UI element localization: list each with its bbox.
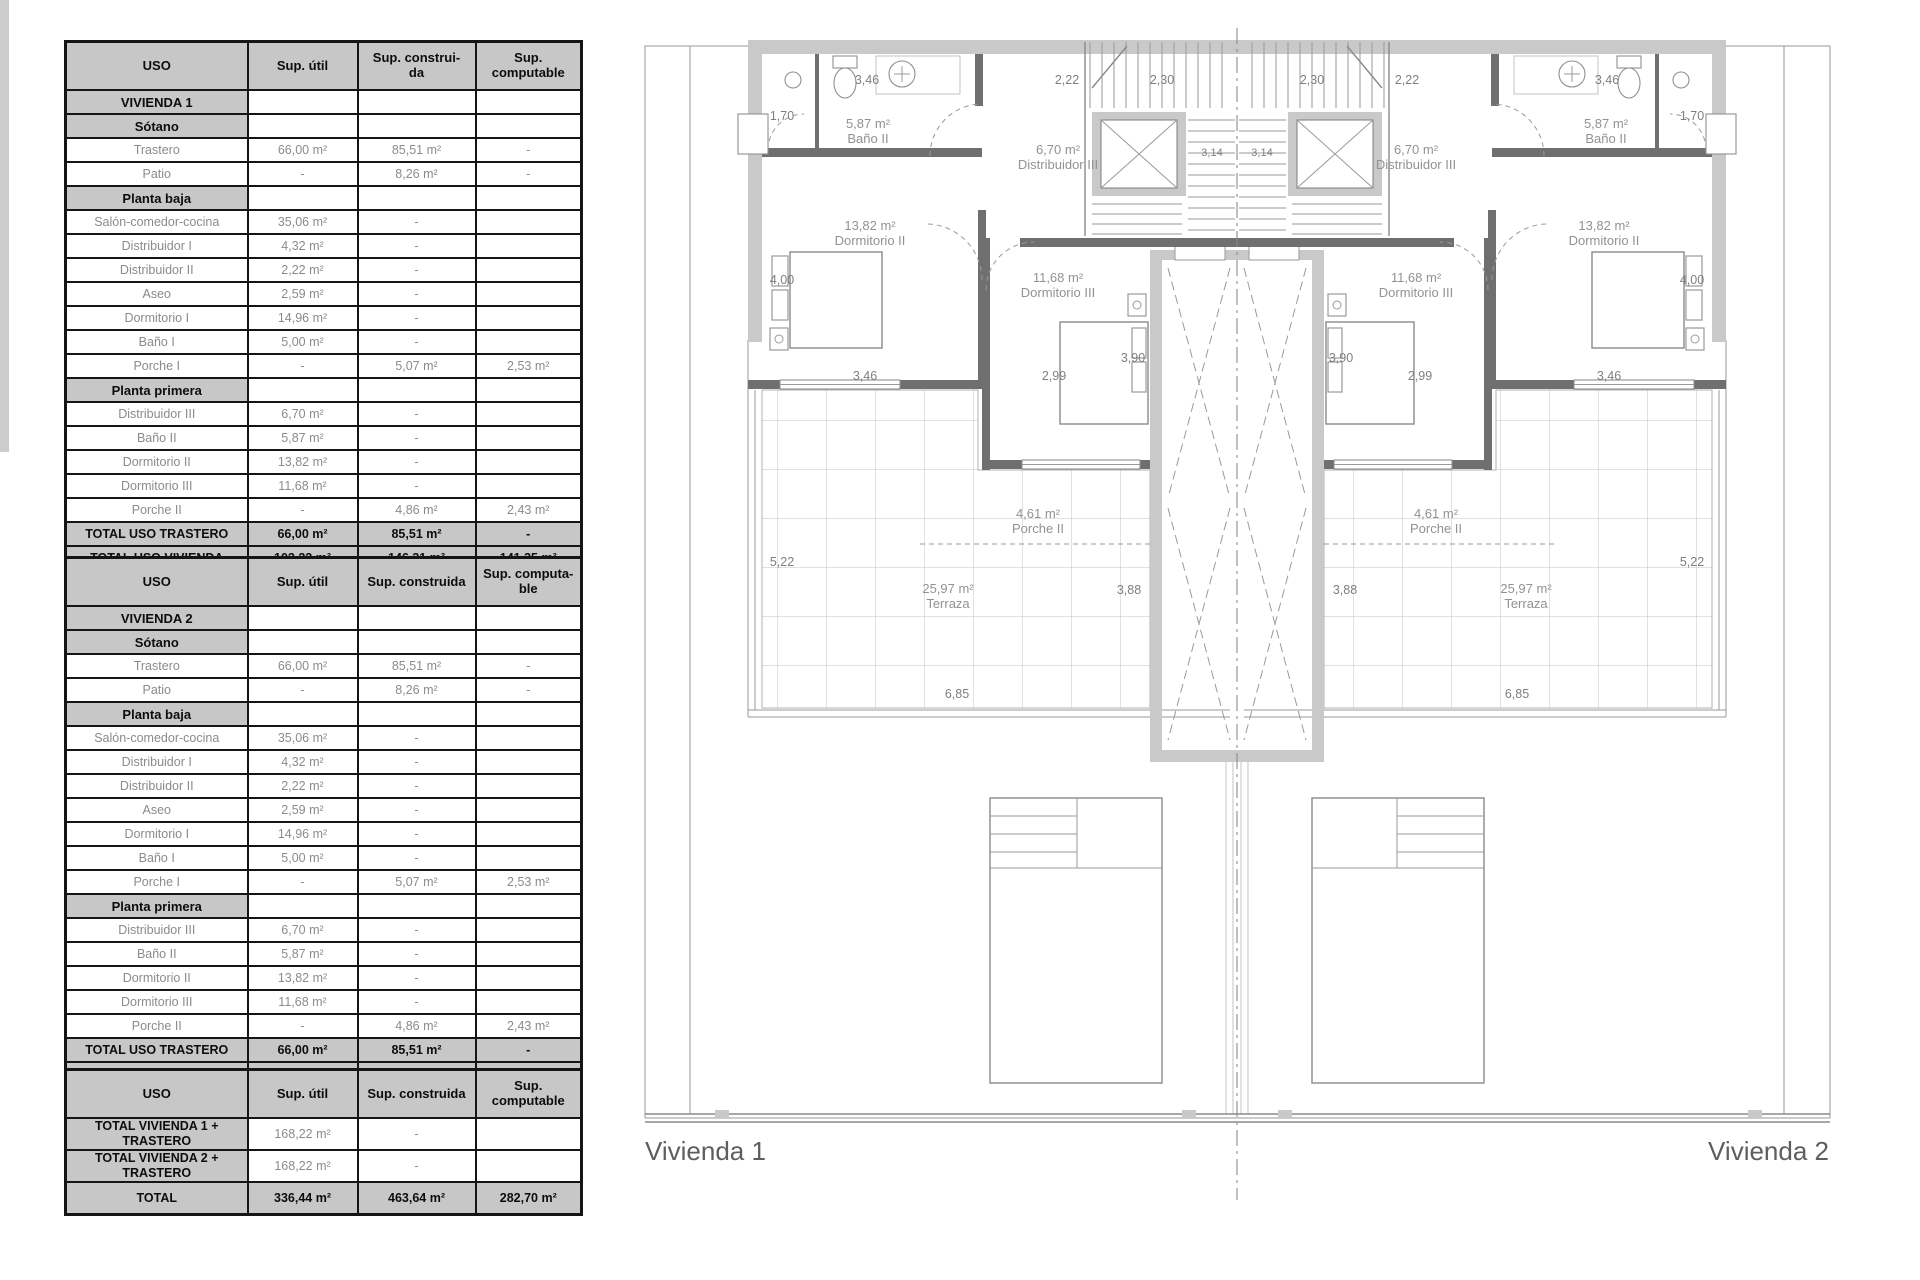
sheet-edge-strip — [0, 0, 9, 452]
table-cell-label: Dormitorio I — [66, 822, 248, 846]
table-cell-construida: 463,64 m² — [358, 1182, 476, 1215]
table-cell-construida: - — [358, 306, 476, 330]
table-cell-label: Planta baja — [66, 186, 248, 210]
dimension-label: 3,90 — [1121, 351, 1145, 365]
room-label: Baño II — [1585, 131, 1626, 146]
table-cell-util: 66,00 m² — [248, 1038, 358, 1062]
dimension-label: 1,70 — [770, 109, 794, 123]
room-label: 5,87 m² — [846, 116, 891, 131]
table-cell-label: TOTAL USO TRASTERO — [66, 1038, 248, 1062]
table-cell-computable — [476, 846, 582, 870]
table-cell-util: 66,00 m² — [248, 654, 358, 678]
dimension-label: 3,46 — [1595, 73, 1619, 87]
table-cell-label: Baño I — [66, 846, 248, 870]
dimension-label: 3,88 — [1333, 583, 1357, 597]
table-cell-construida: - — [358, 282, 476, 306]
table-row: Trastero66,00 m²85,51 m²- — [66, 138, 582, 162]
table-cell-label: Planta primera — [66, 378, 248, 402]
table-cell-util: 6,70 m² — [248, 918, 358, 942]
room-label: 11,68 m² — [1033, 270, 1084, 285]
table-cell-util — [248, 186, 358, 210]
table-row: Baño II5,87 m²- — [66, 942, 582, 966]
room-label: 25,97 m² — [922, 581, 974, 596]
total-row: TOTAL USO TRASTERO66,00 m²85,51 m²- — [66, 522, 582, 546]
table-cell-util: 336,44 m² — [248, 1182, 358, 1215]
table-row: Dormitorio III11,68 m²- — [66, 474, 582, 498]
table-cell-util — [248, 114, 358, 138]
room-label: Porche II — [1410, 521, 1462, 536]
section-row: VIVIENDA 1 — [66, 90, 582, 114]
table-row: Patio-8,26 m²- — [66, 678, 582, 702]
dimension-label: 6,85 — [945, 687, 969, 701]
table-cell-label: Sótano — [66, 630, 248, 654]
table-cell-construida: - — [358, 918, 476, 942]
table-cell-computable — [476, 1150, 582, 1182]
table-cell-computable — [476, 114, 582, 138]
table-cell-construida: 85,51 m² — [358, 1038, 476, 1062]
room-label: Dormitorio II — [1569, 233, 1640, 248]
table-cell-label: TOTAL VIVIENDA 1 + TRASTERO — [66, 1118, 248, 1150]
table-cell-computable — [476, 474, 582, 498]
table-cell-util: 13,82 m² — [248, 450, 358, 474]
table-cell-label: Baño I — [66, 330, 248, 354]
room-label: Baño II — [847, 131, 888, 146]
table-cell-computable — [476, 210, 582, 234]
caption-vivienda-1: Vivienda 1 — [645, 1136, 766, 1166]
dimension-label: 3,46 — [853, 369, 877, 383]
table-cell-util: 2,22 m² — [248, 774, 358, 798]
table-cell-computable — [476, 798, 582, 822]
table-cell-util: 168,22 m² — [248, 1118, 358, 1150]
table-cell-computable: - — [476, 162, 582, 186]
table-cell-util: - — [248, 354, 358, 378]
room-label: 4,61 m² — [1016, 506, 1061, 521]
column-header: Sup. útil — [248, 558, 358, 607]
table-cell-util: 4,32 m² — [248, 234, 358, 258]
table-cell-util: 66,00 m² — [248, 138, 358, 162]
table-row: Porche I-5,07 m²2,53 m² — [66, 870, 582, 894]
room-label: 6,70 m² — [1036, 142, 1081, 157]
table-cell-computable: 2,43 m² — [476, 1014, 582, 1038]
table-row: Porche I-5,07 m²2,53 m² — [66, 354, 582, 378]
area-table-vivienda-2: USOSup. útilSup. construidaSup. computa-… — [64, 556, 583, 1088]
table-row: Dormitorio I14,96 m²- — [66, 822, 582, 846]
section-row: Planta primera — [66, 894, 582, 918]
room-label: Terraza — [926, 596, 970, 611]
table-cell-computable: - — [476, 1038, 582, 1062]
table-cell-label: Porche II — [66, 498, 248, 522]
table-cell-label: VIVIENDA 1 — [66, 90, 248, 114]
table-cell-util: 11,68 m² — [248, 474, 358, 498]
drawing-sheet: { "tables": [ { "title": "VIVIENDA 1", "… — [0, 0, 1920, 1280]
table-cell-label: Trastero — [66, 138, 248, 162]
table-header-row: USOSup. útilSup. construidaSup. computab… — [66, 1070, 582, 1119]
section-row: Planta baja — [66, 702, 582, 726]
table-cell-label: Dormitorio III — [66, 990, 248, 1014]
table-cell-computable — [476, 426, 582, 450]
table-cell-label: Dormitorio III — [66, 474, 248, 498]
area-table-totales: USOSup. útilSup. construidaSup. computab… — [64, 1068, 583, 1216]
table-row: Distribuidor II2,22 m²- — [66, 258, 582, 282]
table-cell-util: 35,06 m² — [248, 210, 358, 234]
column-header: USO — [66, 42, 248, 91]
table-cell-label: Distribuidor I — [66, 750, 248, 774]
table-cell-util: - — [248, 498, 358, 522]
table-cell-construida: - — [358, 726, 476, 750]
table-cell-label: Patio — [66, 162, 248, 186]
total-row: TOTAL336,44 m²463,64 m²282,70 m² — [66, 1182, 582, 1215]
table-cell-util: 2,59 m² — [248, 798, 358, 822]
table-cell-label: Planta primera — [66, 894, 248, 918]
table-cell-label: VIVIENDA 2 — [66, 606, 248, 630]
table-cell-util: 11,68 m² — [248, 990, 358, 1014]
table-cell-util: 5,00 m² — [248, 846, 358, 870]
section-row: Planta baja — [66, 186, 582, 210]
table-row: Salón-comedor-cocina35,06 m²- — [66, 726, 582, 750]
dimension-label: 5,22 — [770, 555, 794, 569]
table-cell-util — [248, 702, 358, 726]
table-cell-construida: - — [358, 822, 476, 846]
table-cell-construida — [358, 630, 476, 654]
table-cell-util: - — [248, 1014, 358, 1038]
table-cell-label: Porche I — [66, 870, 248, 894]
table-cell-computable — [476, 402, 582, 426]
table-cell-label: Dormitorio II — [66, 450, 248, 474]
table-header-row: USOSup. útilSup. construi- daSup. comput… — [66, 42, 582, 91]
table-cell-label: Dormitorio I — [66, 306, 248, 330]
dimension-label: 3,14 — [1201, 147, 1222, 159]
table-cell-construida: - — [358, 846, 476, 870]
section-row: VIVIENDA 2 — [66, 606, 582, 630]
room-label: Dormitorio II — [835, 233, 906, 248]
table-row: Dormitorio II13,82 m²- — [66, 450, 582, 474]
dimension-label: 2,30 — [1300, 73, 1324, 87]
table-cell-construida: 85,51 m² — [358, 654, 476, 678]
column-header: Sup. útil — [248, 42, 358, 91]
table-cell-computable — [476, 186, 582, 210]
table-cell-computable — [476, 606, 582, 630]
table-cell-construida: 8,26 m² — [358, 162, 476, 186]
table-cell-construida — [358, 114, 476, 138]
room-label: Dormitorio III — [1021, 285, 1095, 300]
table-cell-label: Distribuidor I — [66, 234, 248, 258]
table-row: Distribuidor III6,70 m²- — [66, 402, 582, 426]
column-header: Sup. útil — [248, 1070, 358, 1119]
table-row: Baño I5,00 m²- — [66, 330, 582, 354]
table-cell-construida: - — [358, 450, 476, 474]
room-label: 4,61 m² — [1414, 506, 1459, 521]
room-label: 11,68 m² — [1391, 270, 1442, 285]
floor-plan: Vivienda 1 Vivienda 2 3,463,462,222,222,… — [630, 28, 1870, 1208]
table-cell-construida: - — [358, 234, 476, 258]
table-cell-construida: 4,86 m² — [358, 1014, 476, 1038]
table-row: Dormitorio II13,82 m²- — [66, 966, 582, 990]
table-cell-construida: - — [358, 474, 476, 498]
table-cell-computable — [476, 702, 582, 726]
table-cell-construida: 8,26 m² — [358, 678, 476, 702]
dimension-label: 2,99 — [1042, 369, 1066, 383]
table-cell-computable — [476, 330, 582, 354]
table-cell-construida: 85,51 m² — [358, 138, 476, 162]
total-row: TOTAL VIVIENDA 2 + TRASTERO168,22 m²- — [66, 1150, 582, 1182]
table-cell-construida: - — [358, 798, 476, 822]
dimension-label: 3,14 — [1251, 147, 1272, 159]
table-cell-construida: - — [358, 330, 476, 354]
table-cell-label: Sótano — [66, 114, 248, 138]
dimension-label: 2,22 — [1395, 73, 1419, 87]
table-header-row: USOSup. útilSup. construidaSup. computa-… — [66, 558, 582, 607]
table-cell-construida: - — [358, 258, 476, 282]
dimension-label: 3,88 — [1117, 583, 1141, 597]
table-row: Dormitorio III11,68 m²- — [66, 990, 582, 1014]
table-cell-util: - — [248, 678, 358, 702]
table-row: Baño II5,87 m²- — [66, 426, 582, 450]
table-cell-computable — [476, 630, 582, 654]
table-cell-label: Distribuidor III — [66, 918, 248, 942]
table-cell-util: 35,06 m² — [248, 726, 358, 750]
table-cell-computable — [476, 894, 582, 918]
table-cell-util: 2,59 m² — [248, 282, 358, 306]
table-cell-construida: - — [358, 426, 476, 450]
table-cell-util: 14,96 m² — [248, 822, 358, 846]
table-cell-computable — [476, 726, 582, 750]
column-header: Sup. construida — [358, 1070, 476, 1119]
column-header: Sup. construi- da — [358, 42, 476, 91]
dimension-label: 3,90 — [1329, 351, 1353, 365]
dimension-label: 4,00 — [770, 273, 794, 287]
table-cell-construida — [358, 702, 476, 726]
table-cell-construida: - — [358, 774, 476, 798]
room-label: Porche II — [1012, 521, 1064, 536]
table-cell-computable: 2,53 m² — [476, 354, 582, 378]
table-cell-util: - — [248, 870, 358, 894]
table-cell-label: Baño II — [66, 942, 248, 966]
dimension-label: 2,22 — [1055, 73, 1079, 87]
table-cell-util: 6,70 m² — [248, 402, 358, 426]
section-row: Sótano — [66, 114, 582, 138]
table-cell-util: 5,87 m² — [248, 942, 358, 966]
room-label: Distribuidor III — [1018, 157, 1098, 172]
table-row: Baño I5,00 m²- — [66, 846, 582, 870]
table-cell-construida: 4,86 m² — [358, 498, 476, 522]
table-cell-construida: - — [358, 750, 476, 774]
table-cell-construida: - — [358, 942, 476, 966]
table-cell-util: 2,22 m² — [248, 258, 358, 282]
dimension-label: 2,99 — [1408, 369, 1432, 383]
table-cell-util: 5,00 m² — [248, 330, 358, 354]
table-cell-computable — [476, 990, 582, 1014]
room-label: Terraza — [1504, 596, 1548, 611]
table-cell-label: Distribuidor III — [66, 402, 248, 426]
table-cell-util: 13,82 m² — [248, 966, 358, 990]
dimension-label: 1,70 — [1680, 109, 1704, 123]
table-cell-computable: - — [476, 522, 582, 546]
table-cell-computable — [476, 750, 582, 774]
table-cell-computable: 282,70 m² — [476, 1182, 582, 1215]
table-row: Patio-8,26 m²- — [66, 162, 582, 186]
column-header: Sup. computable — [476, 1070, 582, 1119]
table-cell-util: 5,87 m² — [248, 426, 358, 450]
table-cell-label: TOTAL USO TRASTERO — [66, 522, 248, 546]
table-cell-label: Aseo — [66, 798, 248, 822]
table-cell-label: Aseo — [66, 282, 248, 306]
table-cell-construida: 5,07 m² — [358, 354, 476, 378]
table-cell-label: Distribuidor II — [66, 774, 248, 798]
table-cell-computable — [476, 282, 582, 306]
table-cell-label: TOTAL — [66, 1182, 248, 1215]
table-cell-construida — [358, 378, 476, 402]
table-cell-construida — [358, 90, 476, 114]
table-cell-construida: - — [358, 1150, 476, 1182]
table-row: Porche II-4,86 m²2,43 m² — [66, 1014, 582, 1038]
table-cell-util — [248, 630, 358, 654]
table-cell-computable: - — [476, 138, 582, 162]
section-row: Planta primera — [66, 378, 582, 402]
table-cell-label: Planta baja — [66, 702, 248, 726]
table-cell-computable — [476, 918, 582, 942]
table-cell-construida: - — [358, 966, 476, 990]
table-cell-util — [248, 378, 358, 402]
table-cell-label: Porche II — [66, 1014, 248, 1038]
table-cell-construida — [358, 894, 476, 918]
area-table-vivienda-1: USOSup. útilSup. construi- daSup. comput… — [64, 40, 583, 572]
table-cell-label: Baño II — [66, 426, 248, 450]
table-cell-construida — [358, 186, 476, 210]
table-cell-label: Patio — [66, 678, 248, 702]
column-header: Sup. construida — [358, 558, 476, 607]
total-row: TOTAL VIVIENDA 1 + TRASTERO168,22 m²- — [66, 1118, 582, 1150]
table-cell-label: TOTAL VIVIENDA 2 + TRASTERO — [66, 1150, 248, 1182]
table-row: Distribuidor II2,22 m²- — [66, 774, 582, 798]
column-header: Sup. computa- ble — [476, 558, 582, 607]
table-cell-computable: - — [476, 678, 582, 702]
table-cell-construida — [358, 606, 476, 630]
table-cell-construida: 5,07 m² — [358, 870, 476, 894]
room-label: Dormitorio III — [1379, 285, 1453, 300]
table-row: Distribuidor I4,32 m²- — [66, 750, 582, 774]
column-header: Sup. computable — [476, 42, 582, 91]
dimension-label: 5,22 — [1680, 555, 1704, 569]
room-label: 13,82 m² — [1578, 218, 1630, 233]
table-cell-computable — [476, 234, 582, 258]
table-cell-label: Trastero — [66, 654, 248, 678]
table-cell-util: 66,00 m² — [248, 522, 358, 546]
table-cell-computable — [476, 822, 582, 846]
dimension-label: 6,85 — [1505, 687, 1529, 701]
room-label: Distribuidor III — [1376, 157, 1456, 172]
table-cell-computable — [476, 90, 582, 114]
table-cell-computable: 2,53 m² — [476, 870, 582, 894]
table-row: Porche II-4,86 m²2,43 m² — [66, 498, 582, 522]
dimension-label: 3,46 — [855, 73, 879, 87]
table-cell-construida: 85,51 m² — [358, 522, 476, 546]
table-cell-label: Distribuidor II — [66, 258, 248, 282]
table-cell-computable: - — [476, 654, 582, 678]
room-label: 6,70 m² — [1394, 142, 1439, 157]
column-header: USO — [66, 558, 248, 607]
table-cell-computable: 2,43 m² — [476, 498, 582, 522]
table-row: Dormitorio I14,96 m²- — [66, 306, 582, 330]
table-cell-construida: - — [358, 210, 476, 234]
table-row: Salón-comedor-cocina35,06 m²- — [66, 210, 582, 234]
table-cell-construida: - — [358, 990, 476, 1014]
table-cell-computable — [476, 450, 582, 474]
table-cell-util: 4,32 m² — [248, 750, 358, 774]
table-cell-label: Salón-comedor-cocina — [66, 726, 248, 750]
table-cell-computable — [476, 942, 582, 966]
column-header: USO — [66, 1070, 248, 1119]
table-cell-util: 168,22 m² — [248, 1150, 358, 1182]
table-cell-computable — [476, 774, 582, 798]
table-cell-label: Dormitorio II — [66, 966, 248, 990]
table-cell-computable — [476, 258, 582, 282]
table-cell-util — [248, 90, 358, 114]
table-row: Distribuidor I4,32 m²- — [66, 234, 582, 258]
room-label: 5,87 m² — [1584, 116, 1629, 131]
room-label: 13,82 m² — [844, 218, 896, 233]
caption-vivienda-2: Vivienda 2 — [1708, 1136, 1829, 1166]
table-cell-label: Salón-comedor-cocina — [66, 210, 248, 234]
table-cell-computable — [476, 378, 582, 402]
table-cell-construida: - — [358, 1118, 476, 1150]
table-cell-util — [248, 894, 358, 918]
table-row: Aseo2,59 m²- — [66, 798, 582, 822]
room-label: 25,97 m² — [1500, 581, 1552, 596]
section-row: Sótano — [66, 630, 582, 654]
dimension-label: 2,30 — [1150, 73, 1174, 87]
table-cell-construida: - — [358, 402, 476, 426]
dimension-label: 3,46 — [1597, 369, 1621, 383]
table-cell-util: 14,96 m² — [248, 306, 358, 330]
total-row: TOTAL USO TRASTERO66,00 m²85,51 m²- — [66, 1038, 582, 1062]
table-cell-util: - — [248, 162, 358, 186]
table-cell-util — [248, 606, 358, 630]
table-cell-computable — [476, 1118, 582, 1150]
table-row: Distribuidor III6,70 m²- — [66, 918, 582, 942]
table-cell-computable — [476, 966, 582, 990]
table-cell-computable — [476, 306, 582, 330]
table-row: Trastero66,00 m²85,51 m²- — [66, 654, 582, 678]
table-cell-label: Porche I — [66, 354, 248, 378]
table-row: Aseo2,59 m²- — [66, 282, 582, 306]
dimension-label: 4,00 — [1680, 273, 1704, 287]
